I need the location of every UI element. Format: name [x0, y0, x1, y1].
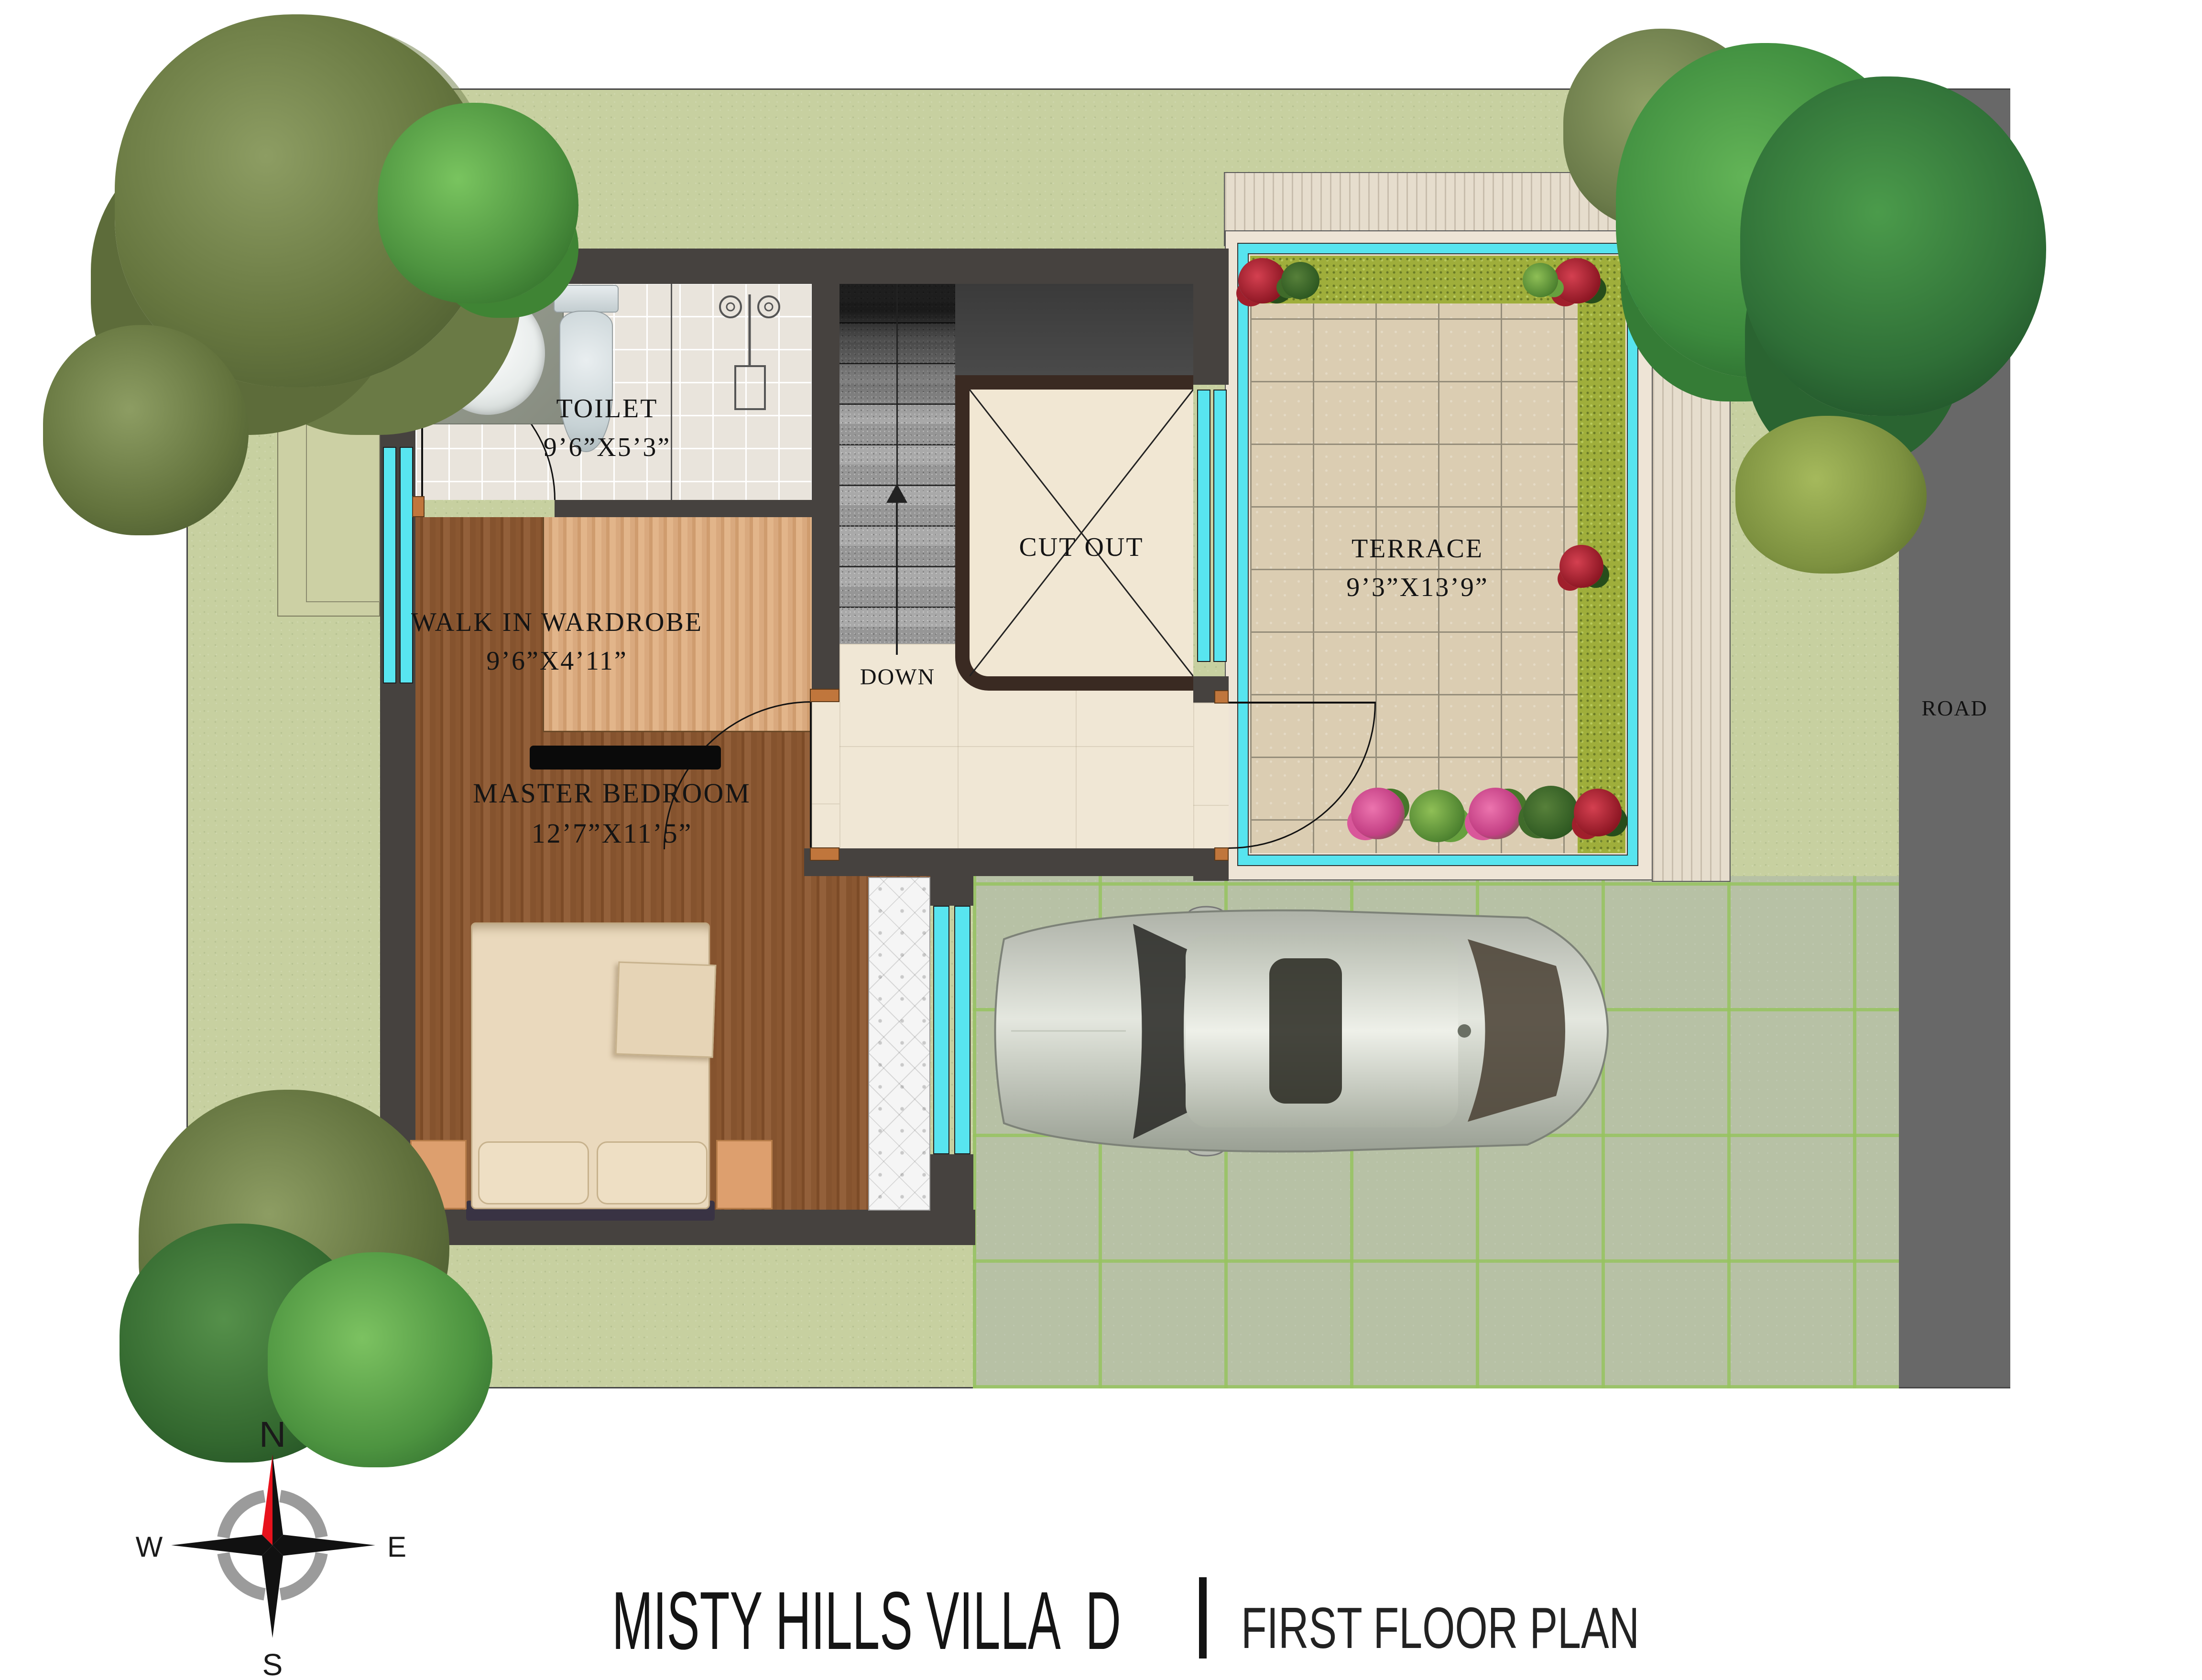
wall-window-stub-bottom	[930, 1154, 973, 1212]
wardrobe-label: WALK IN WARDROBE 9’6”X4’11”	[390, 603, 724, 681]
compass-west-label: W	[136, 1531, 163, 1563]
pillow	[478, 1141, 589, 1204]
flower-pot-icon	[1409, 790, 1465, 842]
terrace-dims: 9’3”X13’9”	[1245, 568, 1590, 607]
wc-toilet-tank	[554, 285, 619, 313]
flower-pot-icon	[1238, 258, 1286, 303]
flower-pot-icon	[1523, 786, 1579, 839]
wall-stair-west	[812, 283, 839, 701]
bedroom-door-leaf	[810, 701, 812, 849]
compass-east-label: E	[387, 1531, 406, 1563]
flower-pot-icon	[1469, 788, 1522, 839]
wall-window-stub-top	[930, 876, 973, 906]
wardrobe-dims: 9’6”X4’11”	[390, 642, 724, 681]
tufted-bench	[868, 877, 930, 1211]
stair-direction-arrowhead	[886, 484, 907, 503]
toilet-door-threshold	[412, 496, 425, 517]
stairs-down-label: DOWN	[841, 661, 954, 694]
dresser	[530, 746, 721, 770]
terrace-door-threshold	[1214, 690, 1229, 704]
terrace-label: TERRACE 9’3”X13’9”	[1245, 530, 1590, 607]
flower-pot-icon	[1574, 789, 1622, 836]
wall-west	[380, 249, 415, 1245]
terrace-deck-right	[1652, 172, 1731, 882]
compass-north-label: N	[259, 1422, 286, 1455]
wall-east-upper	[1193, 249, 1229, 385]
toilet-name: TOILET	[449, 390, 765, 428]
bedroom-door-threshold	[810, 689, 839, 702]
staircase-upper-landing	[955, 283, 1193, 375]
terrace-door-leaf	[1229, 702, 1376, 704]
flower-pot-icon	[1281, 262, 1319, 299]
master-bedroom-name: MASTER BEDROOM	[445, 773, 779, 813]
toilet-label: TOILET 9’6”X5’3”	[449, 390, 765, 467]
page-subtitle: FIRST FLOOR PLAN	[1241, 1594, 1639, 1661]
cutout-window	[1213, 390, 1227, 662]
terrace-name: TERRACE	[1245, 530, 1590, 568]
nightstand	[716, 1140, 773, 1209]
terrace-door-opening	[1193, 703, 1229, 848]
cutout-window	[1197, 390, 1210, 662]
compass-rose-icon: N S W E	[129, 1422, 416, 1680]
title-divider	[1199, 1577, 1207, 1658]
bedroom-window	[933, 906, 949, 1154]
floor-plan-canvas: ROAD	[0, 0, 2202, 1677]
stair-direction-arrow	[896, 488, 898, 655]
faucet-icon	[480, 285, 493, 315]
flower-pot-icon	[1523, 263, 1558, 297]
wall-north	[380, 249, 1229, 284]
bedroom-window	[954, 906, 970, 1154]
wardrobe-name: WALK IN WARDROBE	[390, 603, 724, 642]
bedroom-door-threshold	[810, 847, 839, 861]
wall-foyer-south	[804, 848, 1229, 876]
bedroom-door-opening	[812, 701, 839, 848]
car-icon	[982, 906, 1623, 1157]
wall-toilet-south	[555, 500, 813, 517]
terrace-door-threshold	[1214, 847, 1229, 861]
compass-south-label: S	[262, 1647, 283, 1680]
flower-pot-icon	[1351, 788, 1405, 839]
folded-blanket	[615, 961, 717, 1058]
page-title: MISTY HILLS VILLA D	[612, 1573, 1121, 1668]
nightstand	[410, 1140, 467, 1209]
ground-floor-pad-inner	[306, 361, 380, 602]
pillow	[597, 1141, 708, 1204]
master-bedroom-label: MASTER BEDROOM 12’7”X11’5”	[445, 773, 779, 854]
road-label: ROAD	[1899, 695, 2010, 721]
master-bedroom-dims: 12’7”X11’5”	[445, 813, 779, 854]
flower-pot-icon	[1553, 258, 1601, 303]
toilet-dims: 9’6”X5’3”	[449, 428, 765, 467]
cutout-label: CUT OUT	[970, 528, 1193, 567]
road-strip	[1899, 88, 2010, 1388]
